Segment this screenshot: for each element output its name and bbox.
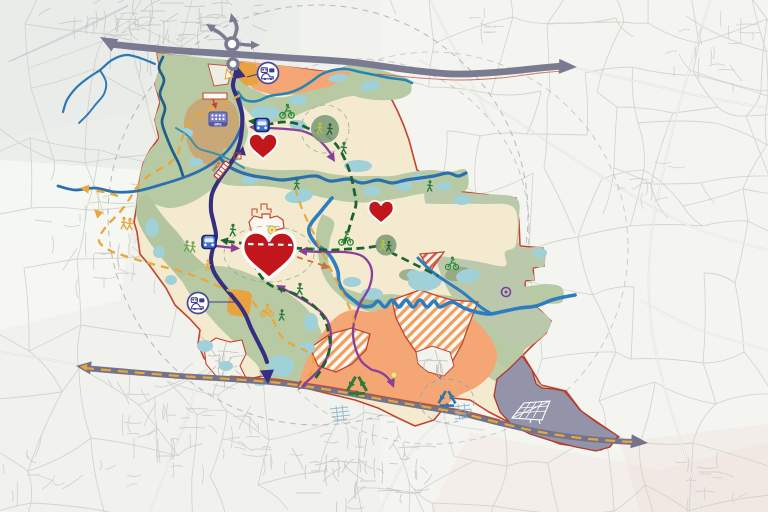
svg-text:BPE: BPE (214, 122, 222, 126)
